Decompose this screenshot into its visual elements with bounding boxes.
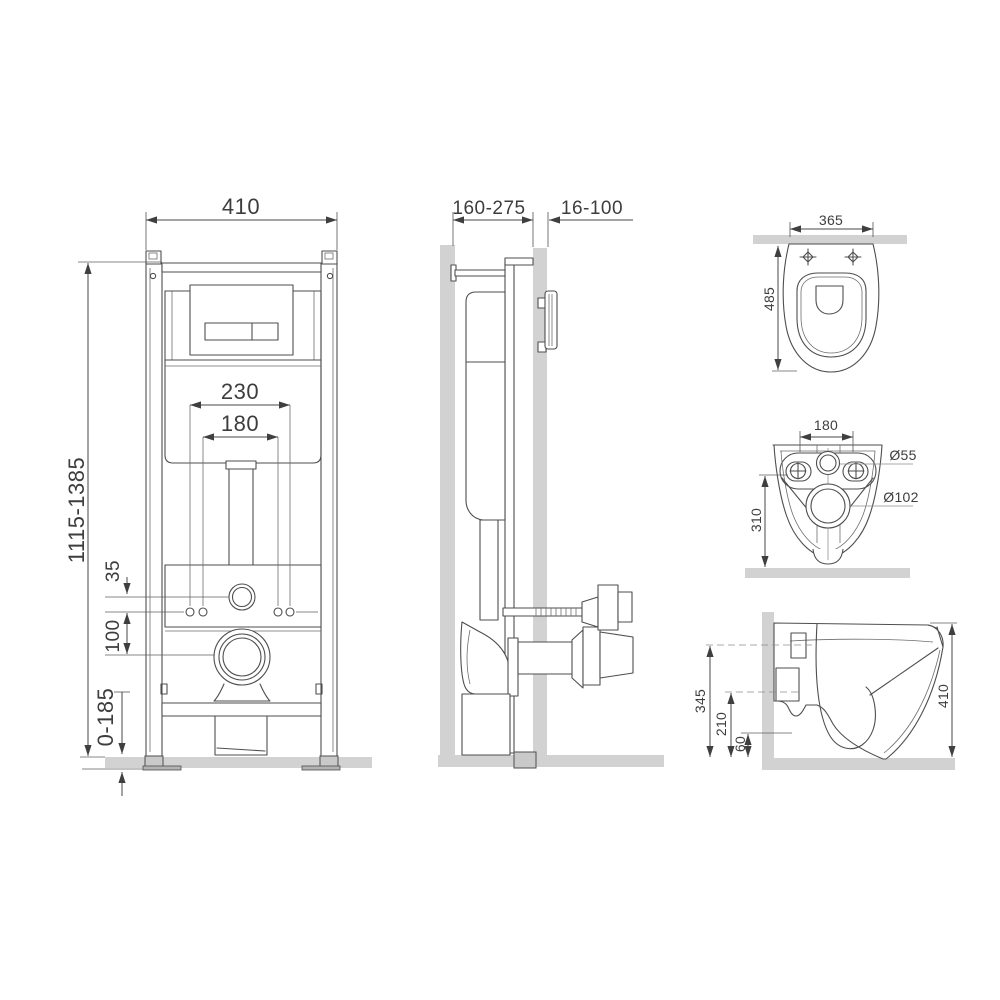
floor-band [745, 568, 910, 578]
dim-bolt-spacing: 180 [814, 417, 838, 433]
water-inlet-port [229, 584, 255, 610]
frame-side-view: 160-275 16-100 [438, 198, 664, 768]
wall-band [762, 612, 774, 770]
inlet-hole [817, 452, 840, 475]
dim-drain-offset: 100 [103, 619, 124, 652]
dim-mounting-height: 310 [748, 508, 764, 532]
side-view-dimensions: 160-275 16-100 [452, 198, 633, 247]
dim-frame-width: 410 [222, 194, 260, 219]
dim-stud-spacing-wide: 230 [221, 379, 259, 404]
structural-wall [440, 245, 455, 757]
frame-front-view: 410 1115-1385 230 180 35 100 0-185 [64, 194, 372, 796]
bowl-side-view: 345 210 60 410 [692, 612, 957, 770]
outlet-connector [572, 627, 633, 688]
dim-outlet-diameter: Ø102 [883, 489, 918, 505]
wall-band [753, 235, 907, 244]
dim-stud-spacing-narrow: 180 [221, 411, 259, 436]
threaded-rod [503, 585, 632, 630]
outlet-hole [806, 484, 850, 528]
drain-outlet [214, 629, 270, 705]
floor-band [762, 758, 955, 770]
lower-crossbar [162, 703, 321, 716]
flush-pipe [226, 461, 256, 565]
dim-frame-height: 1115-1385 [64, 457, 89, 563]
flush-plate [190, 285, 293, 355]
dim-foot-adjustment: 0-185 [93, 688, 118, 747]
dim-bowl-width: 365 [819, 212, 843, 228]
dim-wall-cladding: 16-100 [561, 198, 623, 219]
dim-inlet-diameter: Ø55 [889, 447, 916, 463]
technical-drawing-page: 410 1115-1385 230 180 35 100 0-185 [0, 0, 1000, 1000]
dim-installation-depth: 160-275 [452, 198, 525, 219]
top-crossbar [162, 263, 321, 272]
dim-inlet-offset: 35 [103, 560, 124, 582]
dim-outlet-axis-height: 210 [713, 712, 729, 736]
floor-band [438, 755, 664, 767]
dim-bowl-depth: 485 [761, 287, 777, 311]
bowl-top-view: 365 485 [753, 212, 907, 372]
drain-box [215, 716, 267, 755]
dim-bottom-clearance: 60 [732, 736, 748, 752]
cistern-profile [466, 292, 505, 620]
frame-foot-side [514, 752, 536, 768]
dim-inlet-axis-height: 345 [692, 689, 708, 713]
wall-anchor-rod [451, 265, 505, 281]
bowl-rear-view: 180 310 Ø55 Ø102 [745, 417, 919, 578]
toilet-installation-drawing: 410 1115-1385 230 180 35 100 0-185 [0, 0, 1000, 1000]
drain-pipe [518, 642, 575, 674]
drain-elbow [461, 622, 518, 755]
dim-bowl-height: 410 [935, 684, 951, 708]
